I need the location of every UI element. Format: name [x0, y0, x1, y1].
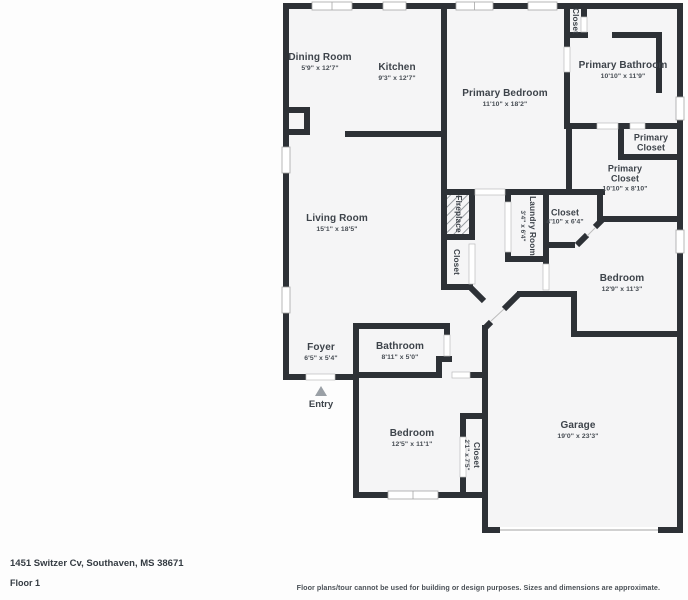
entry-label: Entry — [309, 399, 333, 410]
room-label-living-room: Living Room 15'1" x 18'5" — [306, 213, 368, 233]
room-label-kitchen: Kitchen 9'3" x 12'7" — [378, 62, 415, 82]
room-label-primary-closet-small: Primary Closet — [627, 133, 675, 154]
entry-arrow-icon — [315, 386, 327, 396]
room-label-bedroom-2: Bedroom 12'9" x 11'3" — [600, 273, 645, 293]
room-label-bathroom: Bathroom 8'11" x 5'0" — [376, 341, 424, 361]
disclaimer-text: Floor plans/tour cannot be used for buil… — [297, 583, 660, 592]
room-label-garage: Garage 19'0" x 23'3" — [557, 420, 598, 440]
floor-plan-drawing — [0, 0, 688, 600]
property-address: 1451 Switzer Cv, Southaven, MS 38671 — [10, 558, 184, 569]
room-label-laundry-room: Laundry Room 3'4" x 6'4" — [519, 196, 537, 256]
room-label-primary-bedroom-closet: Closet — [570, 8, 580, 34]
floor-label: Floor 1 — [10, 578, 40, 588]
room-label-fireplace: Fireplace — [453, 195, 463, 232]
room-label-bedroom-closet: Closet 2'1" x 7'5" — [463, 439, 481, 470]
room-label-primary-bedroom: Primary Bedroom 11'10" x 18'2" — [462, 88, 547, 108]
room-label-primary-bathroom: Primary Bathroom 10'10" x 11'9" — [579, 60, 668, 80]
room-label-bedroom-1: Bedroom 12'5" x 11'1" — [390, 428, 435, 448]
room-label-fireplace-closet: Closet — [451, 249, 461, 275]
room-label-foyer: Foyer 6'5" x 5'4" — [304, 342, 337, 362]
floor-plan-page: Dining Room 5'9" x 12'7" Kitchen 9'3" x … — [0, 0, 688, 600]
room-label-hall-closet: Closet 4'10" x 6'4" — [546, 207, 583, 226]
room-label-dining-room: Dining Room 5'9" x 12'7" — [288, 52, 351, 72]
garage-door — [500, 527, 658, 533]
room-label-primary-closet: Primary Closet 10'10" x 8'10" — [601, 163, 649, 193]
